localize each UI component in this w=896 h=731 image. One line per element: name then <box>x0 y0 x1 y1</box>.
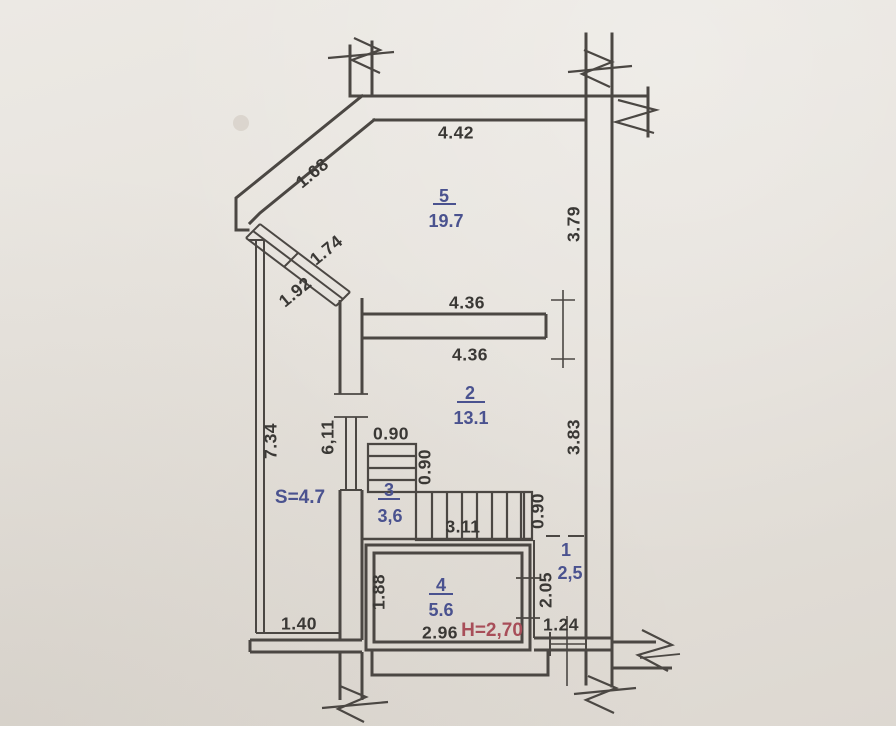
dim-room1-width: 1.24 <box>543 615 579 635</box>
room-4-number: 4 <box>436 575 446 595</box>
room-3-number: 3 <box>384 480 394 500</box>
dim-balcony-width: 1.40 <box>281 614 317 634</box>
dim-stair-lower-width: 0.90 <box>528 493 548 529</box>
dim-room1-depth: 2.05 <box>536 572 556 608</box>
room-1-number: 1 <box>561 540 571 560</box>
dim-inner-wall-length: 6,11 <box>318 419 338 454</box>
dim-right-wall-upper: 3.79 <box>564 206 584 242</box>
room-2-area: 13.1 <box>453 408 488 428</box>
room1-walls <box>534 536 612 686</box>
ceiling-height-label: H=2,70 <box>461 620 523 641</box>
dim-stair-upper-run: 0.90 <box>415 449 435 485</box>
room-3-area: 3,6 <box>377 506 402 526</box>
dim-room4-width: 2.96 <box>422 623 458 643</box>
dim-bay-window-lower: 1.92 <box>275 273 316 311</box>
dim-stair-run: 3.11 <box>445 517 480 537</box>
room-5-area: 19.7 <box>428 211 463 231</box>
room-1-area: 2,5 <box>557 563 582 583</box>
dim-room4-depth: 1.88 <box>369 574 389 610</box>
dim-balcony-length: 7.34 <box>261 423 281 459</box>
dim-stair-upper-width: 0.90 <box>373 424 409 444</box>
scanned-paper-sheet: 5 19.7 2 13.1 3 3,6 4 5.6 1 2,5 S=4.7 H=… <box>0 0 896 726</box>
room-5-number: 5 <box>439 186 449 206</box>
dim-partition-below: 4.36 <box>452 345 488 365</box>
paper-smudge <box>233 115 249 131</box>
room-4-area: 5.6 <box>428 600 453 620</box>
dim-right-wall-lower: 3.83 <box>564 419 584 455</box>
balcony-area-label: S=4.7 <box>275 487 325 508</box>
floor-plan-drawing: 5 19.7 2 13.1 3 3,6 4 5.6 1 2,5 S=4.7 H=… <box>0 0 896 726</box>
room-2-number: 2 <box>465 383 475 403</box>
dim-partition-above: 4.36 <box>449 293 485 313</box>
dim-top-wall: 4.42 <box>438 123 474 143</box>
